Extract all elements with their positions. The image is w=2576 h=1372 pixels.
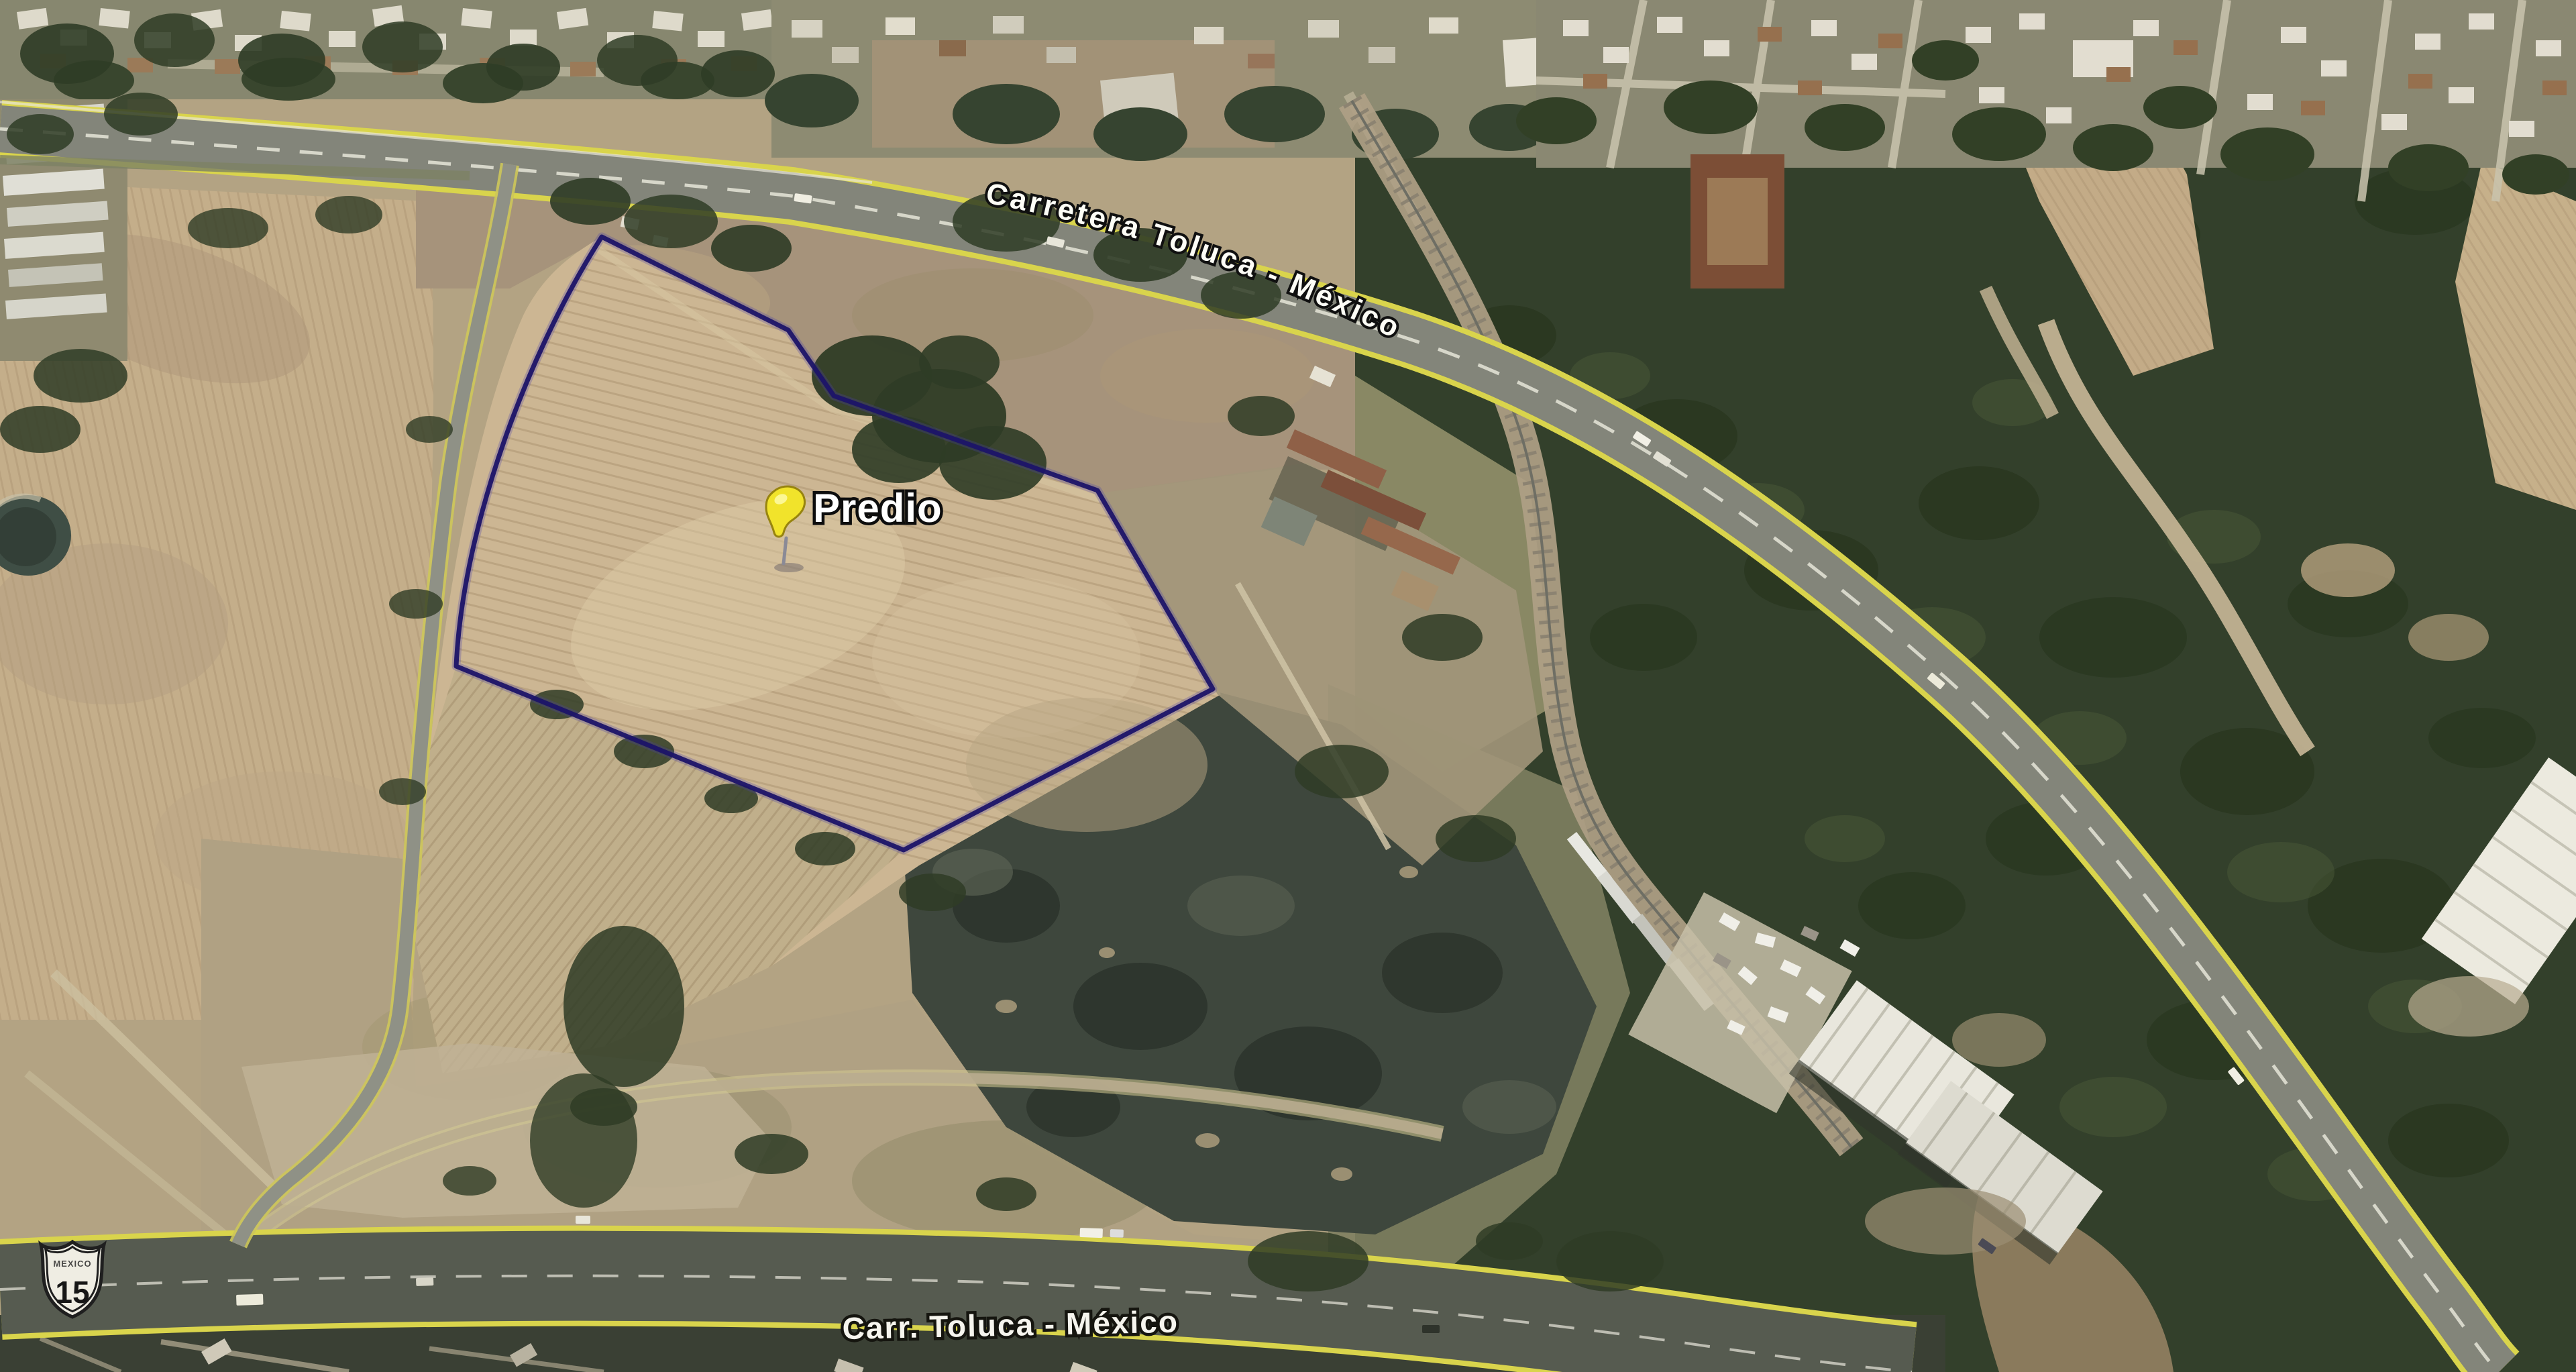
parcel-label: Predio (813, 486, 943, 531)
google-earth-viewport: Predio Carretera Toluca - México Carr. T… (0, 0, 2576, 1372)
route-shield-number: 15 (55, 1275, 89, 1310)
satellite-map-canvas[interactable]: Predio Carretera Toluca - México Carr. T… (0, 0, 2576, 1372)
satellite-basemap: Predio Carretera Toluca - México Carr. T… (0, 0, 2576, 1372)
road-label-bottom: Carr. Toluca - México (842, 1304, 1179, 1346)
route-shield-country-label: MEXICO (53, 1259, 91, 1269)
